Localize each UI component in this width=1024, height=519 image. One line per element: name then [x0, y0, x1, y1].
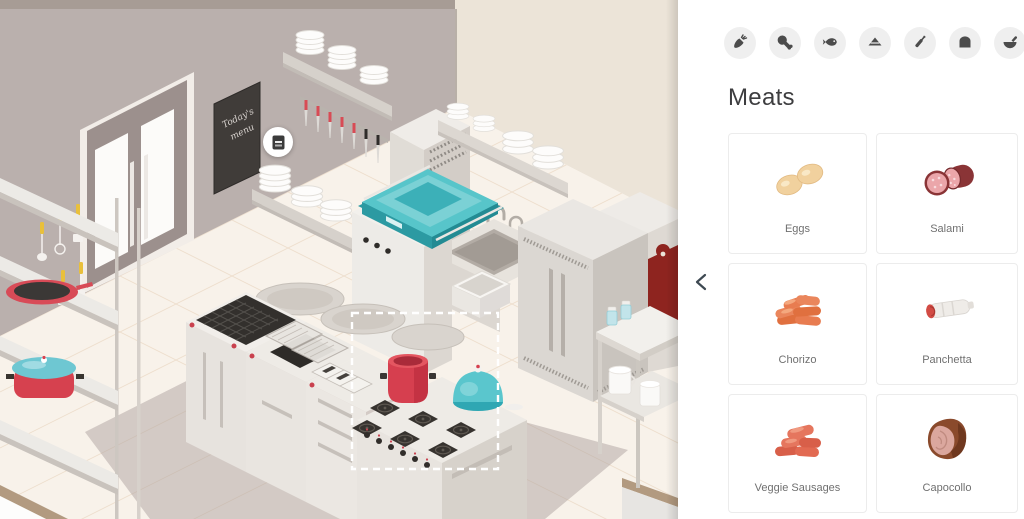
- bottle-icon: [911, 33, 929, 54]
- item-label: Eggs: [785, 223, 810, 235]
- category-bread-button[interactable]: [949, 27, 981, 59]
- menu-board-icon: [272, 135, 285, 150]
- item-card-chorizo[interactable]: Chorizo: [728, 263, 867, 385]
- panchetta-image: [877, 264, 1017, 354]
- category-bottles-button[interactable]: [904, 27, 936, 59]
- carrot-icon: [731, 33, 749, 54]
- item-label: Panchetta: [922, 354, 972, 366]
- eggs-image: [729, 134, 866, 223]
- item-panel: Meats Eggs: [678, 0, 1024, 519]
- capocollo-image: [877, 395, 1017, 482]
- app-window: Today's menu: [0, 0, 1024, 519]
- item-label: Capocollo: [923, 482, 972, 494]
- jug: [609, 366, 635, 394]
- item-grid: Eggs: [728, 133, 1018, 513]
- item-label: Chorizo: [779, 354, 817, 366]
- item-card-eggs[interactable]: Eggs: [728, 133, 867, 254]
- bread-icon: [956, 33, 974, 54]
- category-vegetables-button[interactable]: [724, 27, 756, 59]
- panel-heading: Meats: [728, 84, 795, 112]
- category-mortar-button[interactable]: [994, 27, 1024, 59]
- category-cakes-button[interactable]: [859, 27, 891, 59]
- collapse-panel-button[interactable]: [689, 269, 715, 295]
- salami-image: [877, 134, 1017, 223]
- item-label: Salami: [930, 223, 964, 235]
- jug: [640, 381, 660, 407]
- chevron-left-icon: [689, 283, 715, 298]
- category-tabs: [724, 27, 1024, 59]
- item-card-veggie-sausages[interactable]: Veggie Sausages: [728, 394, 867, 513]
- item-card-salami[interactable]: Salami: [876, 133, 1018, 254]
- item-label: Veggie Sausages: [755, 482, 841, 494]
- veggie-sausages-image: [729, 395, 866, 482]
- item-card-capocollo[interactable]: Capocollo: [876, 394, 1018, 513]
- kitchen-scene: Today's menu: [0, 0, 678, 519]
- menu-hotspot-button[interactable]: [263, 127, 293, 157]
- item-card-panchetta[interactable]: Panchetta: [876, 263, 1018, 385]
- category-fish-button[interactable]: [814, 27, 846, 59]
- category-meats-button[interactable]: [769, 27, 801, 59]
- chorizo-image: [729, 264, 866, 354]
- kitchen-illustration: Today's menu: [0, 0, 678, 519]
- cake-icon: [866, 33, 884, 54]
- fish-icon: [821, 33, 839, 54]
- mortar-icon: [1001, 33, 1019, 54]
- meat-icon: [776, 33, 794, 54]
